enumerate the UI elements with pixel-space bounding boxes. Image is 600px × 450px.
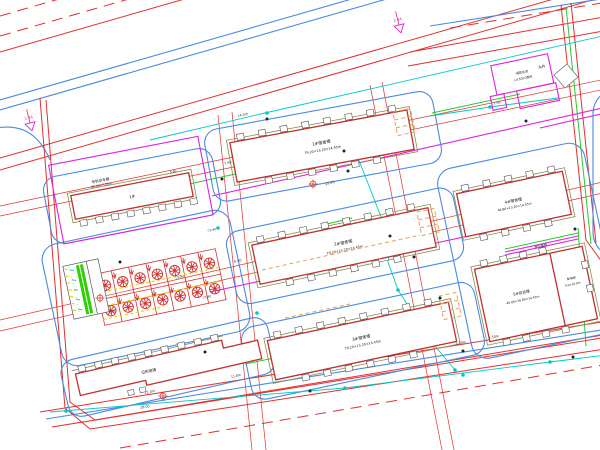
dimension-label: 7.50: [493, 100, 501, 106]
svg-text:2.44: 2.44: [393, 16, 403, 23]
building-2-dormitory: 2#宿舍楼 79.20×13.20×14.45m: [247, 200, 440, 291]
building-3-dormitory: 3#宿舍楼 79.20×13.20×14.45m: [263, 295, 461, 388]
tree-symbol: [203, 257, 215, 269]
tree-symbol: [157, 294, 169, 306]
building-4-dormitory: 4#宿舍楼 46.80×13.20×14.45m: [452, 164, 576, 244]
dimension-label: 18.00: [140, 404, 150, 409]
elevation-label: 5.90: [169, 169, 176, 174]
tree-symbol: [209, 282, 221, 294]
entrance-marker: 2.44: [22, 108, 37, 132]
site-plan-canvas: 1#宿舍楼 79.20×13.20×14.45m 2#宿舍楼 79.20×13.…: [0, 0, 600, 450]
elevation-marker: ▽5.90: [202, 294, 212, 300]
elevation-marker: ▽5.90: [207, 227, 217, 233]
tree-symbol: [139, 297, 151, 309]
parking-grid: [94, 249, 226, 326]
entrance-marker: 2.44: [391, 10, 406, 34]
building-5-complex: 5#综合楼 46.80×16.80×14.45m 配电房 9.0×16.8m: [470, 239, 600, 349]
dimension-label: 15.00: [325, 180, 335, 186]
dimension-label: 11.0m: [231, 373, 242, 379]
shops-building: 沿街商铺 11.0m: [71, 326, 265, 414]
tree-symbol: [117, 275, 129, 287]
dimension-label: 3.50m: [455, 340, 467, 346]
stall-pad: [63, 259, 109, 319]
tree-symbol: [151, 268, 163, 280]
tree-symbol: [134, 272, 146, 284]
elevation-marker: ▽5.90: [175, 274, 185, 280]
tree-symbol: [186, 261, 198, 273]
tree-symbol: [174, 290, 186, 302]
svg-text:2.44: 2.44: [24, 114, 34, 121]
dimension-label: 6.00: [234, 258, 242, 263]
well-label: 水井: [538, 63, 546, 69]
